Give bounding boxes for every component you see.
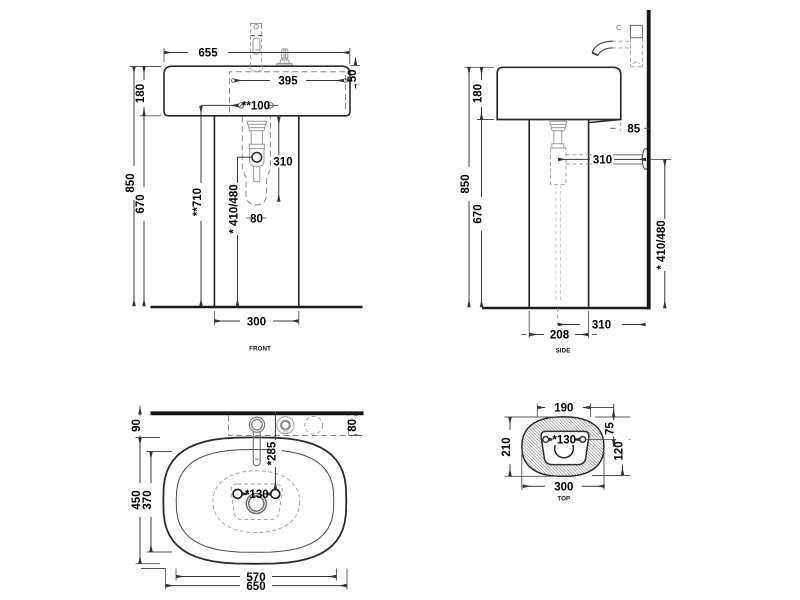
svg-text:670: 670 (473, 204, 485, 223)
svg-text:50: 50 (347, 69, 359, 82)
svg-text:* 410/480: * 410/480 (229, 184, 241, 233)
svg-text:395: 395 (278, 76, 298, 88)
svg-text:90: 90 (131, 419, 143, 432)
svg-text:670: 670 (135, 194, 147, 213)
svg-text:655: 655 (198, 48, 218, 60)
svg-text:75: 75 (605, 422, 617, 435)
svg-text:850: 850 (460, 174, 472, 193)
svg-text:**100: **100 (242, 101, 270, 113)
svg-text:208: 208 (550, 330, 570, 342)
svg-text:300: 300 (247, 317, 266, 329)
svg-text:SIDE: SIDE (556, 348, 571, 355)
svg-text:FRONT: FRONT (249, 346, 271, 353)
svg-text:310: 310 (273, 157, 292, 169)
svg-text:85: 85 (627, 124, 640, 136)
svg-text:310: 310 (593, 154, 612, 166)
svg-text:300: 300 (554, 482, 573, 494)
svg-text:850: 850 (125, 173, 137, 192)
svg-text:80: 80 (347, 419, 359, 432)
svg-text:80: 80 (250, 213, 263, 225)
svg-text:180: 180 (473, 84, 485, 103)
svg-text:* 410/480: * 410/480 (656, 220, 668, 269)
svg-text:*130: *130 (552, 434, 576, 446)
svg-text:370: 370 (142, 490, 154, 509)
svg-text:210: 210 (501, 437, 513, 456)
svg-text:**710: **710 (192, 188, 204, 216)
svg-text:*130: *130 (245, 489, 269, 501)
svg-text:180: 180 (135, 84, 147, 103)
svg-text:310: 310 (592, 320, 611, 332)
svg-text:120: 120 (614, 441, 626, 460)
svg-text:190: 190 (554, 403, 573, 415)
svg-text:*285: *285 (267, 441, 279, 465)
svg-text:TOP: TOP (557, 496, 570, 503)
svg-text:650: 650 (246, 581, 265, 593)
